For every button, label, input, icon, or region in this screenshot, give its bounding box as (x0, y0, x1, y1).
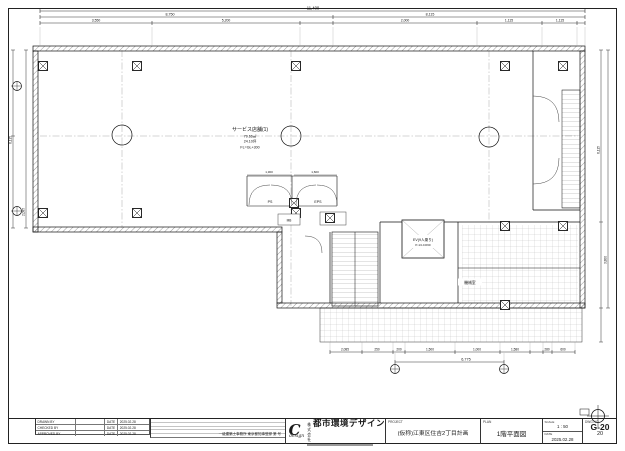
dim-bottom-seg7: 280 (544, 348, 550, 352)
dim-top-seg1: 3,550 (92, 19, 101, 23)
sign-role: DRAWN BY (36, 419, 76, 424)
sign-name (76, 419, 106, 424)
shop-area-m2: 79.66㎡ (244, 134, 257, 139)
terrace-paving (320, 308, 582, 342)
dim-top-row2-right: 8,115 (426, 13, 435, 17)
scale-date-field: SCALE 1 : 50 DATE 2025.02.28 (542, 419, 582, 444)
titleblock-spacer (8, 419, 35, 444)
dim-top-seg4: 1,115 (505, 19, 513, 23)
plan-title: 1階平面図 (497, 428, 527, 438)
grid-bubbles-bottom (391, 365, 509, 374)
sign-date-label: DATE (105, 425, 118, 430)
dim-top-seg5: 1,115 (556, 19, 564, 23)
dim-bottom-seg4: 1,500 (426, 348, 434, 352)
sign-date: 2025.02.28 (118, 425, 149, 430)
dim-top-seg2: 5,200 (222, 19, 231, 23)
shelf-fixture (562, 90, 580, 208)
elevator-shaft: EV(9人乗り) P-13-CO60 (402, 220, 444, 258)
dim-left-1: 6,115 (9, 136, 13, 144)
dim-top-seg3: 2,000 (401, 19, 410, 23)
closet-dimensions: 1,300 1,600 (247, 170, 337, 175)
machine-room-label: 機械室 (458, 279, 482, 286)
elevator-model: P-13-CO60 (415, 243, 431, 247)
utility-boxes: MB (278, 212, 346, 225)
company-section: C design 株式会社 都市環境デザイン (285, 419, 385, 444)
dim-bottom-seg2: 250 (374, 348, 380, 352)
signature-table: DRAWN BY DATE 2025.02.28 CHECKED BY DATE… (35, 419, 150, 435)
shop-floor-level: FL=GL+300 (240, 146, 259, 150)
dim-bottom-seg8: 600 (560, 348, 566, 352)
scale-value: 1 : 50 (557, 424, 568, 429)
registration-text: 一級建築士事務所 東京都知事登録 第 号 (219, 432, 281, 437)
company-logo: C design (286, 422, 303, 440)
date-value: 2025.02.28 (552, 437, 574, 442)
sign-date-label: DATE (105, 431, 118, 436)
dim-bottom-total: 6,775 (461, 358, 471, 362)
eps-label: EPS (314, 200, 322, 204)
sign-date-label: DATE (105, 419, 118, 424)
staircase (332, 232, 378, 306)
svg-text:1,300: 1,300 (265, 170, 273, 174)
dim-bottom-seg3: 200 (396, 348, 402, 352)
sign-name (76, 431, 106, 436)
scale-row: SCALE 1 : 50 (543, 419, 582, 432)
dimension-lines-left (11, 50, 28, 228)
sign-role: APPROVED BY (36, 431, 76, 436)
floor-plan-drawing: EV(9人乗り) P-13-CO60 MB PS EPS 機械室 (0, 0, 625, 451)
dim-left-2: 2,085 (22, 208, 26, 216)
project-name: (仮称)江東区住吉2丁目計画 (398, 428, 469, 437)
dim-right-1: 6,115 (597, 146, 601, 154)
project-field: PROJECT (仮称)江東区住吉2丁目計画 (385, 419, 480, 444)
dim-top-total: 11,400 (307, 6, 320, 11)
ps-label: PS (268, 200, 273, 204)
sign-name (76, 425, 106, 430)
drawing-number-field: DWG.NO G-20 20 (582, 419, 617, 444)
date-row: DATE 2025.02.28 (543, 432, 582, 444)
dwg-label: DWG.NO (585, 420, 598, 424)
dim-top-row2-left: 8,750 (166, 13, 175, 17)
dimension-lines-bottom (330, 342, 575, 364)
logo-word: design (289, 434, 304, 439)
company-address (307, 444, 373, 446)
dimension-lines-top (40, 9, 585, 46)
sign-date: 2025.02.28 (118, 431, 149, 436)
sign-date: 2025.02.28 (118, 419, 149, 424)
svg-text:機械室: 機械室 (464, 280, 476, 285)
project-label: PROJECT (388, 420, 403, 424)
sign-role: CHECKED BY (36, 425, 76, 430)
mb-label: MB (287, 219, 292, 223)
revision-rows: 一級建築士事務所 東京都知事登録 第 号 (150, 419, 285, 438)
date-label: DATE (545, 432, 553, 436)
dimension-lines-right (599, 50, 610, 342)
grid-bubbles-left (13, 82, 22, 216)
sign-row: APPROVED BY DATE 2025.02.28 (36, 431, 149, 436)
svg-text:1,600: 1,600 (311, 170, 319, 174)
shop-label-block: サービス店舗(1) 79.66㎡ 24.10坪 FL=GL+300 (232, 126, 268, 150)
title-block: DRAWN BY DATE 2025.02.28 CHECKED BY DATE… (8, 418, 617, 444)
dim-bottom-seg1: 2,085 (341, 348, 349, 352)
sheet-number: 20 (597, 431, 603, 438)
key-plan-box (580, 409, 589, 415)
dim-right-2: 3,800 (604, 256, 608, 264)
shop-name: サービス店舗(1) (232, 126, 268, 133)
plan-label: PLAN (483, 420, 491, 424)
plan-title-field: PLAN 1階平面図 (480, 419, 542, 444)
company-name: 都市環境デザイン (313, 417, 385, 429)
dim-bottom-seg6: 1,580 (511, 348, 519, 352)
elevator-label: EV(9人乗り) (413, 237, 433, 242)
drawing-sheet: EV(9人乗り) P-13-CO60 MB PS EPS 機械室 (0, 0, 625, 451)
shop-area-tsubo: 24.10坪 (244, 139, 257, 144)
scale-label: SCALE (545, 420, 555, 424)
hall-paving (462, 225, 578, 303)
dim-bottom-seg5: 1,000 (473, 348, 481, 352)
company-prefix: 株式会社 (307, 423, 311, 443)
